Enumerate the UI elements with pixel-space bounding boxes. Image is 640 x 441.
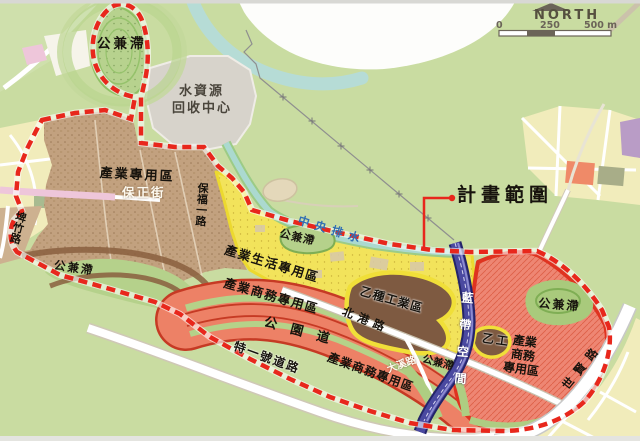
scale-tick-500: 500 m — [584, 20, 617, 31]
baozheng-street-label: 保正街 — [122, 186, 166, 199]
baofu-road-label: 保福一路 — [194, 182, 209, 227]
plan-scope-callout: 計畫範圍 — [457, 186, 553, 206]
industry-business-east-label: 產業 商務 專用區 — [502, 332, 544, 379]
planning-map: 公兼滯 水資源 回收中心 產業專用區 保正街 保福一路 公兼滯 產業生活專用區 … — [0, 0, 640, 441]
pond-nw-label: 公兼滯 — [97, 37, 147, 51]
sheet-edge-top — [0, 0, 640, 4]
scale-bar — [499, 31, 611, 37]
water-plant-label-line1: 水資源 — [179, 85, 224, 99]
water-plant-label-line2: 回收中心 — [172, 102, 232, 116]
scale-tick-250: 250 — [540, 20, 560, 31]
scale-tick-0: 0 — [496, 20, 503, 31]
sheet-edge-bottom — [0, 436, 640, 441]
